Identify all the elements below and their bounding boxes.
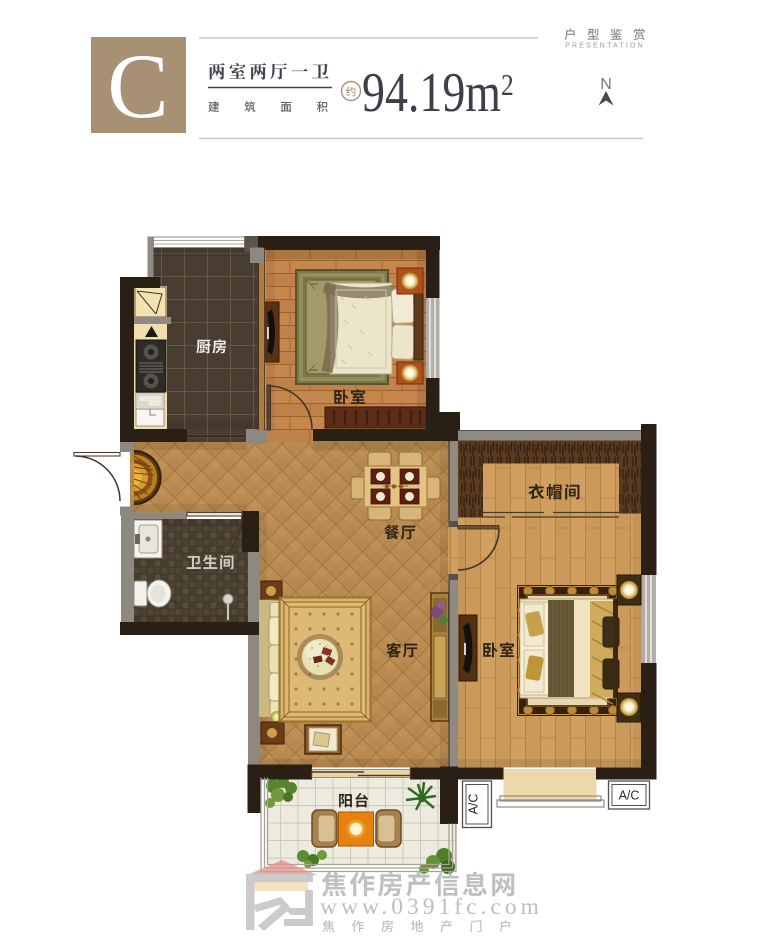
svg-text:A/C: A/C — [467, 794, 481, 815]
svg-text:94.19m2: 94.19m2 — [362, 62, 514, 124]
svg-text:C: C — [107, 35, 168, 137]
svg-text:A/C: A/C — [619, 789, 640, 803]
svg-text:PRESENTATION: PRESENTATION — [565, 43, 645, 50]
svg-text:www.0391fc.com: www.0391fc.com — [320, 894, 543, 920]
svg-text:N: N — [600, 76, 612, 93]
